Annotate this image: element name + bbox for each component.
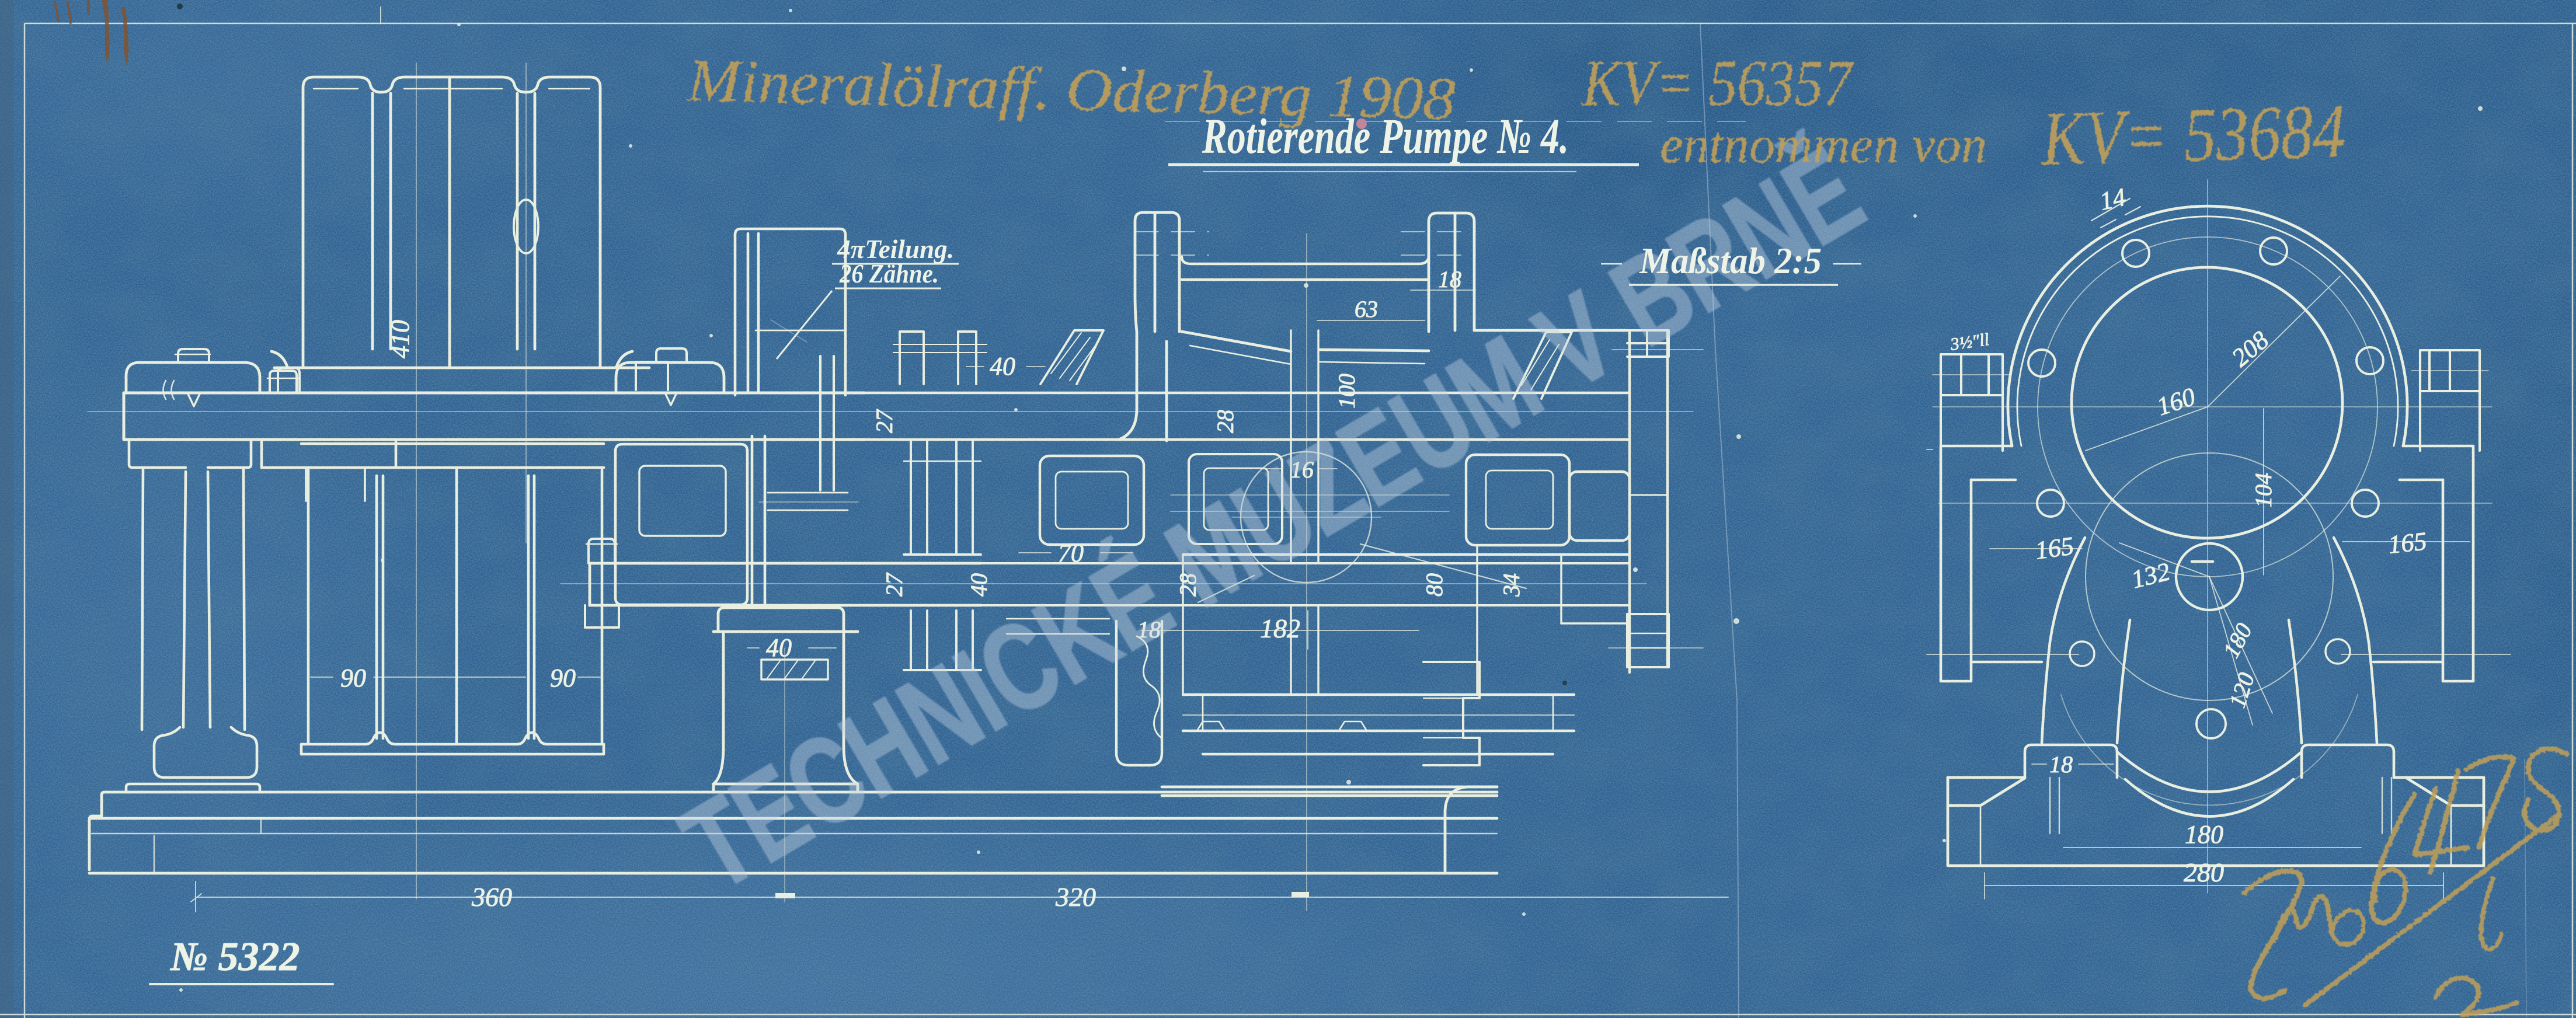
svg-text:40: 40 (990, 352, 1015, 381)
svg-text:80: 80 (1421, 573, 1447, 597)
svg-text:18: 18 (2049, 751, 2073, 778)
svg-text:34: 34 (1498, 573, 1524, 597)
svg-text:KV= 56357: KV= 56357 (1581, 47, 1854, 120)
svg-text:№ 5322: № 5322 (170, 935, 300, 979)
svg-text:KV= 53684: KV= 53684 (2039, 88, 2346, 182)
svg-text:180: 180 (2185, 820, 2223, 849)
svg-text:28: 28 (1212, 410, 1238, 433)
svg-text:40: 40 (966, 573, 992, 597)
svg-text:90: 90 (340, 664, 366, 692)
svg-text:entnommen von: entnommen von (1660, 116, 1987, 174)
svg-text:280: 280 (2184, 857, 2224, 887)
svg-text:104: 104 (2250, 473, 2276, 508)
svg-text:320: 320 (1055, 882, 1096, 912)
svg-text:27: 27 (881, 572, 907, 597)
svg-text:18: 18 (1438, 266, 1461, 292)
svg-text:40: 40 (766, 633, 792, 662)
svg-text:90: 90 (550, 664, 576, 692)
svg-text:182: 182 (1260, 613, 1300, 643)
svg-text:360: 360 (471, 882, 512, 912)
svg-text:Maßstab 2:5: Maßstab 2:5 (1639, 240, 1822, 281)
svg-text:63: 63 (1355, 296, 1378, 322)
svg-text:410: 410 (386, 320, 415, 358)
svg-text:165: 165 (2034, 531, 2076, 565)
svg-text:165: 165 (2387, 527, 2428, 559)
svg-text:27: 27 (871, 409, 897, 433)
